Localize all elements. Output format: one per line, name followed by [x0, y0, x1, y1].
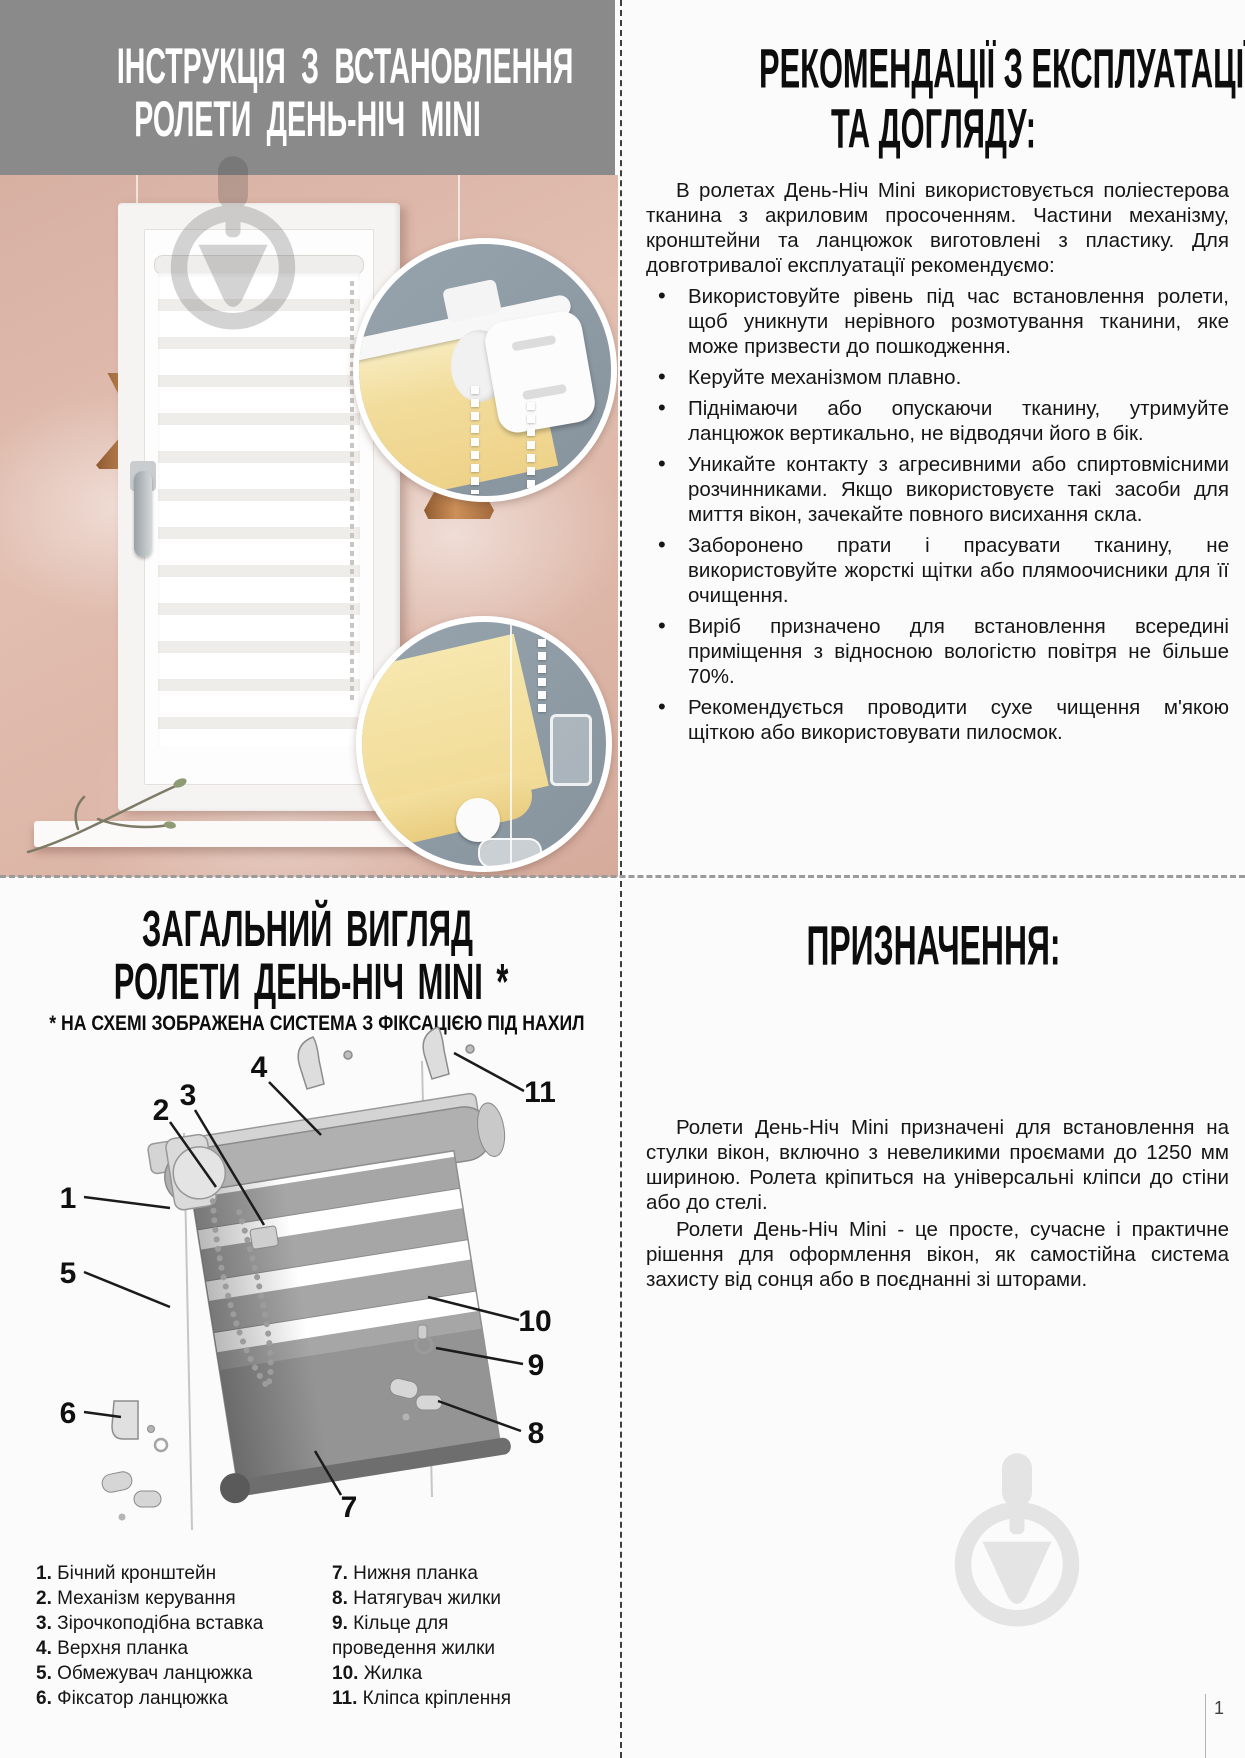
legend-item: 10. Жилка	[332, 1661, 552, 1686]
fixation-closeup-inset	[356, 616, 612, 872]
legend-item: 6. Фіксатор ланцюжка	[36, 1686, 321, 1711]
diagram-label-8: 8	[528, 1417, 545, 1450]
plant-twig	[18, 767, 228, 857]
blind-assembly	[147, 1087, 556, 1508]
list-item: •Керуйте механізмом плавно.	[646, 365, 1229, 390]
list-item-text: Рекомендується проводити сухе чищення м'…	[688, 696, 1229, 744]
diagram-label-11: 11	[524, 1076, 556, 1109]
purpose-text: Ролети День-Ніч Mini призначені для вста…	[646, 1115, 1229, 1294]
legend-left-column: 1. Бічний кронштейн 2. Механізм керуванн…	[36, 1561, 321, 1711]
legend-item: 3. Зірочкоподібна вставка	[36, 1611, 321, 1636]
line-tensioner	[550, 714, 592, 786]
vertical-dashed-divider	[620, 0, 622, 1758]
list-item-text: Виріб призначено для встановлення всеред…	[688, 615, 1229, 688]
bead-chain	[538, 626, 546, 712]
window-handle	[134, 471, 152, 557]
legend-item: 9. Кільце для проведення жилки	[332, 1611, 552, 1661]
legend-item: 7. Нижня планка	[332, 1561, 552, 1586]
horizontal-dashed-divider	[0, 875, 1245, 878]
brand-watermark-icon	[158, 156, 308, 338]
brand-watermark-icon	[942, 1453, 1092, 1635]
diagram-label-1: 1	[60, 1182, 77, 1215]
recommendations-title: РЕКОМЕНДАЦІЇ З ЕКСПЛУАТАЦІЇ ТА ДОГЛЯДУ:	[622, 0, 1245, 158]
list-item-text: Піднімаючи або опускаючи тканину, утриму…	[688, 397, 1229, 445]
overview-title-line1: ЗАГАЛЬНИЙ ВИГЛЯД	[114, 902, 501, 958]
recommendations-text: В ролетах День-Ніч Mini використовується…	[646, 178, 1229, 751]
list-item: •Піднімаючи або опускаючи тканину, утрим…	[646, 396, 1229, 446]
mechanism-closeup-inset	[353, 238, 617, 502]
diagram-label-5: 5	[60, 1257, 77, 1290]
control-mechanism	[482, 308, 598, 435]
guide-line	[510, 622, 512, 866]
bullet-icon: •	[658, 613, 666, 638]
instruction-page: ІНСТРУКЦІЯ З ВСТАНОВЛЕННЯ РОЛЕТИ ДЕНЬ-НІ…	[0, 0, 1245, 1758]
installation-header: ІНСТРУКЦІЯ З ВСТАНОВЛЕННЯ РОЛЕТИ ДЕНЬ-НІ…	[0, 0, 615, 175]
list-item: •Використовуйте рівень під час встановле…	[646, 284, 1229, 359]
recommendations-intro: В ролетах День-Ніч Mini використовується…	[646, 178, 1229, 278]
legend-item: 8. Натягувач жилки	[332, 1586, 552, 1611]
recommendations-title-line2: ТА ДОГЛЯДУ:	[759, 97, 1108, 158]
diagram-label-3: 3	[180, 1079, 197, 1112]
recommendations-section: РЕКОМЕНДАЦІЇ З ЕКСПЛУАТАЦІЇ ТА ДОГЛЯДУ: …	[622, 0, 1245, 877]
bullet-icon: •	[658, 532, 666, 557]
purpose-title: ПРИЗНАЧЕННЯ:	[622, 877, 1245, 975]
bead-chain	[527, 402, 535, 494]
diagram-label-9: 9	[528, 1349, 545, 1382]
installation-title-line1: ІНСТРУКЦІЯ З ВСТАНОВЛЕННЯ	[117, 38, 498, 95]
list-item: •Рекомендується проводити сухе чищення м…	[646, 695, 1229, 745]
diagram-label-6: 6	[60, 1397, 77, 1430]
diagram-label-2: 2	[153, 1094, 170, 1127]
legend-item: 5. Обмежувач ланцюжка	[36, 1661, 321, 1686]
overview-title-line2: РОЛЕТИ ДЕНЬ-НІЧ MINI *	[114, 955, 501, 1011]
list-item: •Виріб призначено для встановлення всере…	[646, 614, 1229, 689]
recommendations-list: •Використовуйте рівень під час встановле…	[646, 284, 1229, 745]
recommendations-title-line1: РЕКОМЕНДАЦІЇ З ЕКСПЛУАТАЦІЇ	[759, 37, 1108, 98]
legend-item: 1. Бічний кронштейн	[36, 1561, 321, 1586]
list-item: •Заборонено прати і прасувати тканину, н…	[646, 533, 1229, 608]
list-item-text: Керуйте механізмом плавно.	[688, 366, 961, 389]
diagram-label-7: 7	[341, 1491, 358, 1524]
legend-item: 2. Механізм керування	[36, 1586, 321, 1611]
side-bracket	[112, 1401, 155, 1439]
installation-title-line2: РОЛЕТИ ДЕНЬ-НІЧ MINI	[117, 91, 498, 148]
overview-section: ЗАГАЛЬНИЙ ВИГЛЯД РОЛЕТИ ДЕНЬ-НІЧ MINI * …	[0, 877, 615, 1758]
page-number-tick	[1205, 1694, 1206, 1758]
day-night-blind-fabric	[158, 273, 360, 747]
diagram-label-10: 10	[518, 1305, 551, 1338]
list-item-text: Уникайте контакту з агресивними або спир…	[688, 453, 1229, 526]
purpose-paragraph: Ролети День-Ніч Mini призначені для вста…	[646, 1115, 1229, 1215]
installation-title: ІНСТРУКЦІЯ З ВСТАНОВЛЕННЯ РОЛЕТИ ДЕНЬ-НІ…	[0, 0, 615, 146]
legend-item: 4. Верхня планка	[36, 1636, 321, 1661]
purpose-section: ПРИЗНАЧЕННЯ: Ролети День-Ніч Mini призна…	[622, 877, 1245, 1758]
blind-chain	[350, 281, 354, 701]
legend-item: 11. Кліпса кріплення	[332, 1686, 552, 1711]
fastener-hardware	[100, 1439, 167, 1521]
purpose-paragraph: Ролети День-Ніч Mini - це просте, сучасн…	[646, 1217, 1229, 1292]
page-number: 1	[1214, 1698, 1224, 1719]
bullet-icon: •	[658, 694, 666, 719]
bullet-icon: •	[658, 395, 666, 420]
bullet-icon: •	[658, 451, 666, 476]
blind-exploded-diagram: 1 2 3 4 5 6 7 8 9 10 11	[18, 1025, 598, 1551]
mounting-clips	[298, 1027, 474, 1089]
list-item: •Уникайте контакту з агресивними або спи…	[646, 452, 1229, 527]
diagram-label-4: 4	[251, 1051, 268, 1084]
line-ring	[456, 798, 500, 842]
chain-fixator	[478, 838, 542, 868]
window-photo	[0, 175, 618, 877]
bead-chain	[471, 386, 479, 494]
bullet-icon: •	[658, 283, 666, 308]
overview-title: ЗАГАЛЬНИЙ ВИГЛЯД РОЛЕТИ ДЕНЬ-НІЧ MINI *	[0, 877, 615, 1009]
list-item-text: Заборонено прати і прасувати тканину, не…	[688, 534, 1229, 607]
list-item-text: Використовуйте рівень під час встановлен…	[688, 285, 1229, 358]
installation-section: ІНСТРУКЦІЯ З ВСТАНОВЛЕННЯ РОЛЕТИ ДЕНЬ-НІ…	[0, 0, 615, 877]
legend-right-column: 7. Нижня планка 8. Натягувач жилки 9. Кі…	[332, 1561, 552, 1711]
bullet-icon: •	[658, 364, 666, 389]
